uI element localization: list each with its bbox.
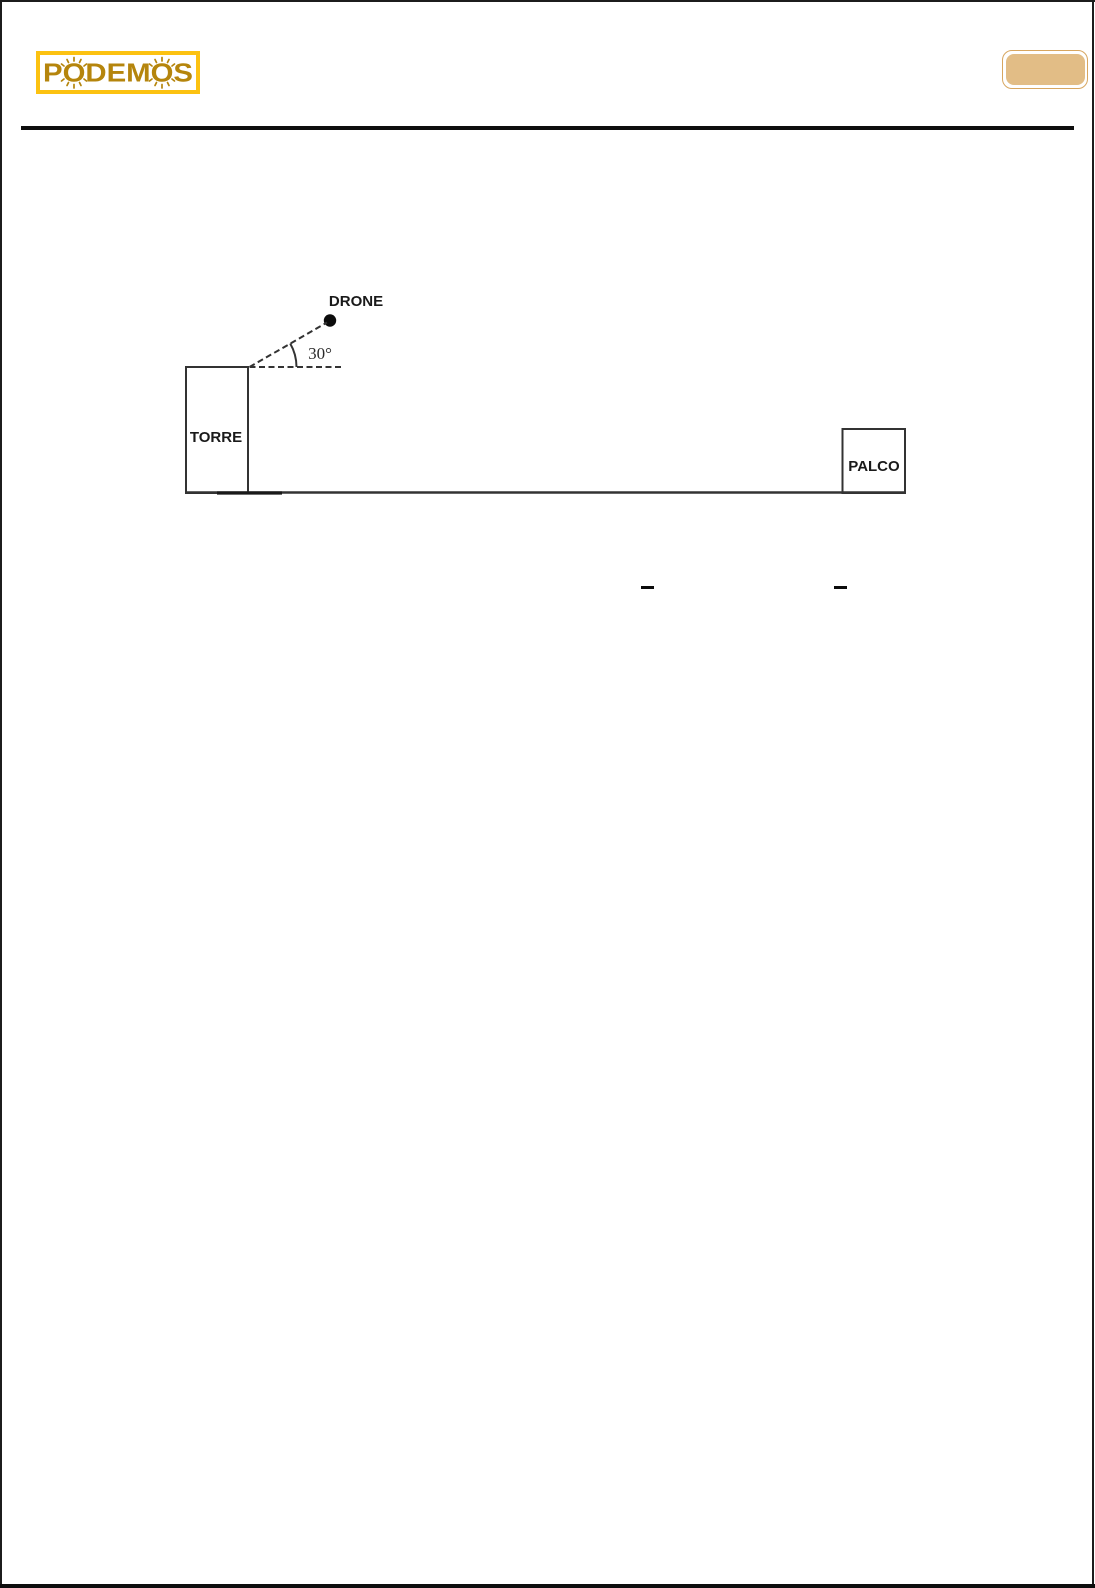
- svg-text:TORRE: TORRE: [190, 429, 242, 446]
- svg-text:DRONE: DRONE: [329, 293, 383, 310]
- svg-text:PALCO: PALCO: [848, 458, 900, 475]
- svg-text:30°: 30°: [308, 344, 332, 363]
